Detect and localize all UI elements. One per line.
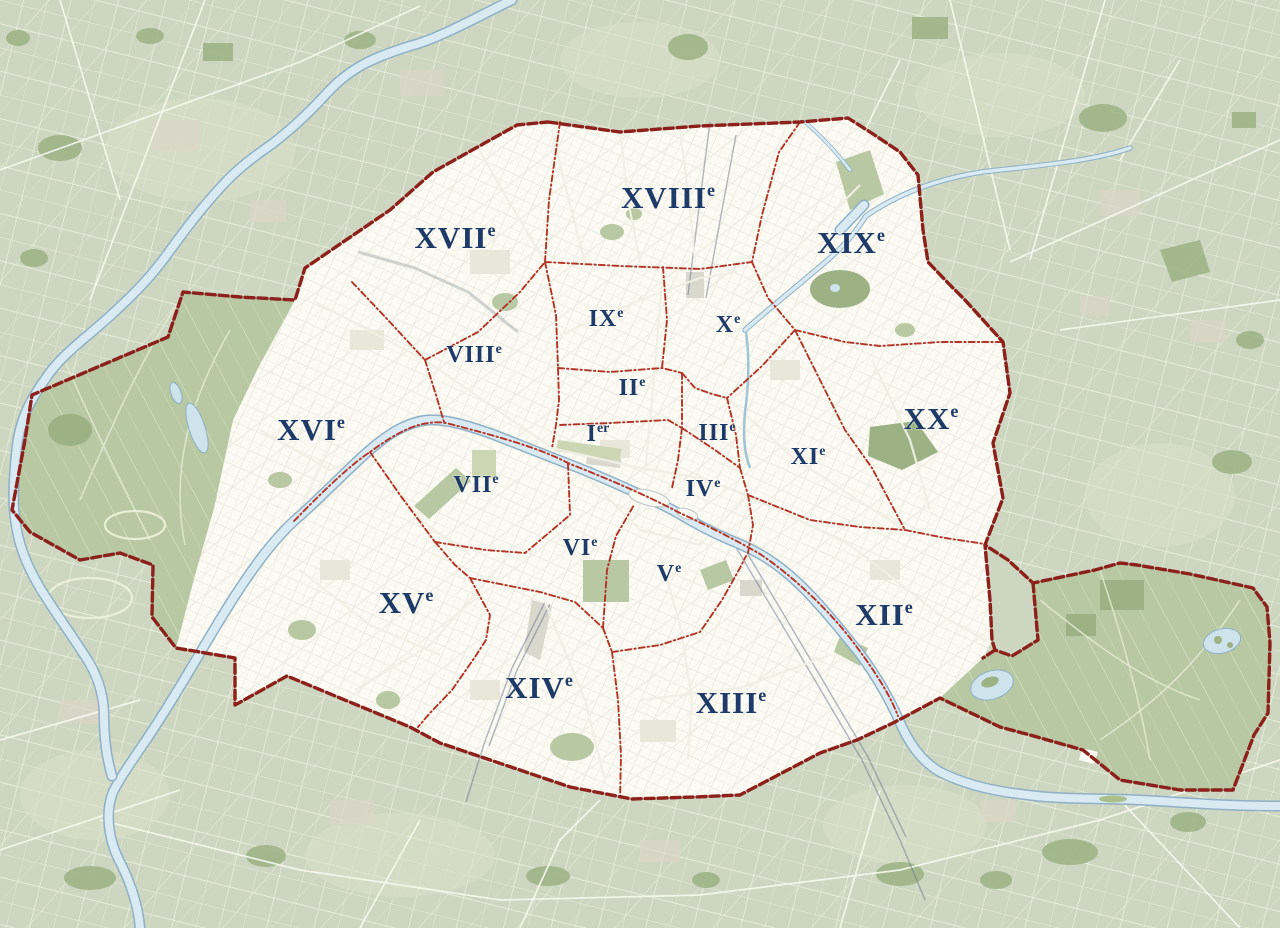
map-canvas: XVIIIeXVIIeXIXeIXeXeVIIIeIIeXVIeIerIIIeX… xyxy=(0,0,1280,928)
label-arrondissement-16: XVIe xyxy=(277,412,345,447)
label-arrondissement-15: XVe xyxy=(379,585,434,620)
label-arrondissement-19: XIXe xyxy=(817,225,885,260)
label-arrondissement-12: XIIe xyxy=(855,597,913,632)
label-arrondissement-14: XIVe xyxy=(505,670,573,705)
label-arrondissement-13: XIIIe xyxy=(696,685,767,720)
label-arrondissement-18: XVIIIe xyxy=(621,180,715,215)
label-arrondissement-17: XVIIe xyxy=(415,220,496,255)
paris-arrondissements-map: XVIIIeXVIIeXIXeIXeXeVIIIeIIeXVIeIerIIIeX… xyxy=(0,0,1280,928)
label-arrondissement-7: VIIe xyxy=(453,472,498,498)
label-arrondissement-8: VIIIe xyxy=(446,342,502,368)
label-arrondissement-20: XXe xyxy=(904,401,959,436)
